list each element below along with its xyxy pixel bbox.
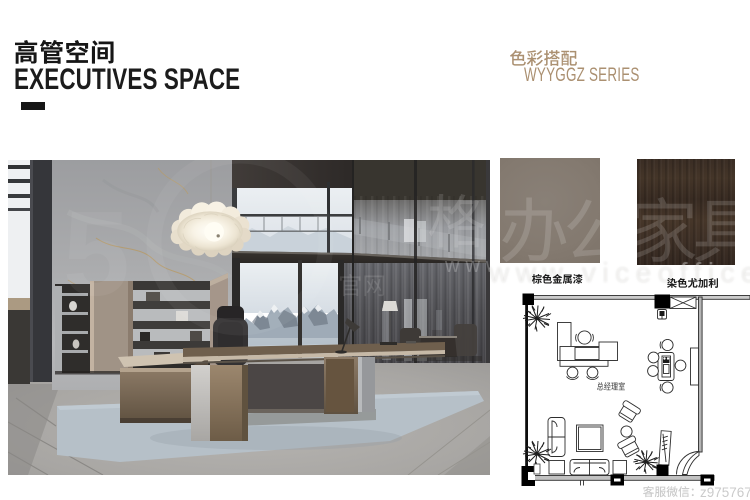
svg-text:www: www [444, 255, 490, 277]
svg-text:5: 5 [63, 187, 130, 321]
